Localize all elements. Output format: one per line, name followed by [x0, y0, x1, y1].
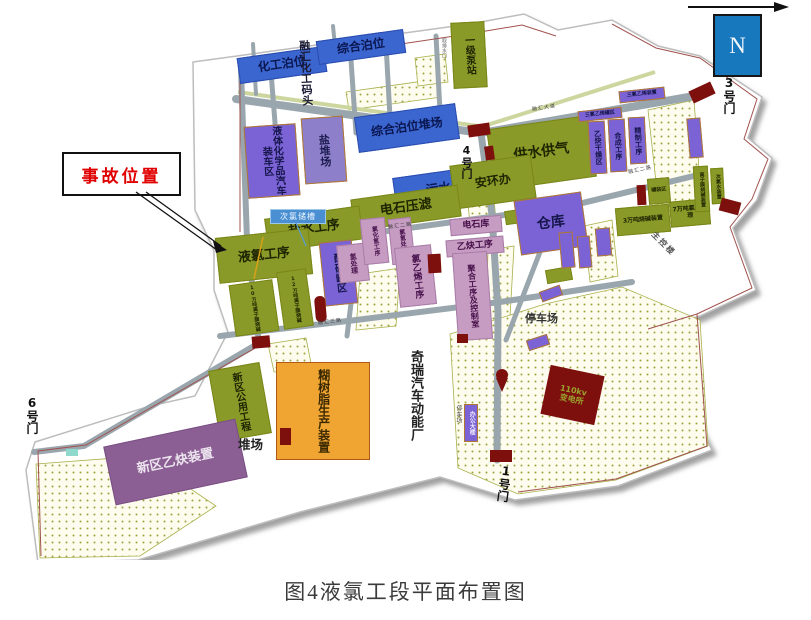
building-block	[66, 449, 78, 456]
label-stockyard: 堆场	[238, 438, 276, 451]
area-membrane-caustic: 离子膜烧碱装置	[693, 166, 710, 213]
label-parking-north: 停车场	[525, 313, 571, 325]
area-paste-resin-plant: 糊树脂生产装置	[276, 362, 370, 460]
area-caustic-3: 3万吨烧碱装置	[615, 204, 671, 237]
label-chery-plant: 奇瑞汽车动能厂	[402, 350, 422, 470]
area-refining: 精制工序	[628, 117, 647, 165]
area-pump-station: 一级泵站	[450, 21, 487, 89]
accident-location-box: 事故位置	[62, 152, 181, 196]
building-block	[577, 235, 593, 268]
building-block	[595, 227, 612, 256]
gate6-label: 6号门	[25, 396, 38, 442]
gate1-block	[490, 450, 512, 462]
area-chem-truck-loading: 液体化学品汽车装车区	[244, 123, 301, 198]
area-filling: 罐装区	[647, 177, 671, 205]
label-wharf: 融汇化工码头	[292, 40, 315, 137]
figure-page: 化工泊位 综合泊位 综合泊位堆场 污水处理 供水供气 安环办 电石压滤 盐水工序…	[0, 0, 811, 620]
building-block	[457, 334, 468, 343]
building-block	[558, 231, 575, 268]
building-block	[484, 145, 495, 160]
label-parking-small: 停车场	[452, 405, 461, 437]
area-caustic-10: 10万吨离子膜烧碱	[229, 279, 280, 337]
label-water-intake: 取排水口	[436, 38, 446, 72]
area-acetylene-drying: 乙炔干燥区	[588, 121, 608, 175]
gate4-label: 4号门	[460, 144, 472, 184]
building-block	[428, 254, 442, 274]
area-synthesis: 合成工序	[608, 119, 628, 173]
building-block	[636, 185, 646, 205]
area-office-building: 办公大楼	[464, 404, 478, 442]
figure-caption: 图4液氯工段平面布置图	[0, 576, 811, 606]
gate-mid-block	[252, 335, 271, 349]
north-compass: N	[713, 14, 762, 77]
gate3-label: 3号门	[722, 76, 735, 120]
area-polymerization: 聚合工序及控制室	[452, 251, 493, 341]
building-block	[280, 428, 291, 445]
hypochlorite-callout: 次氯储槽	[270, 209, 326, 224]
area-hcl-section: 氯化氢工序	[360, 217, 390, 265]
